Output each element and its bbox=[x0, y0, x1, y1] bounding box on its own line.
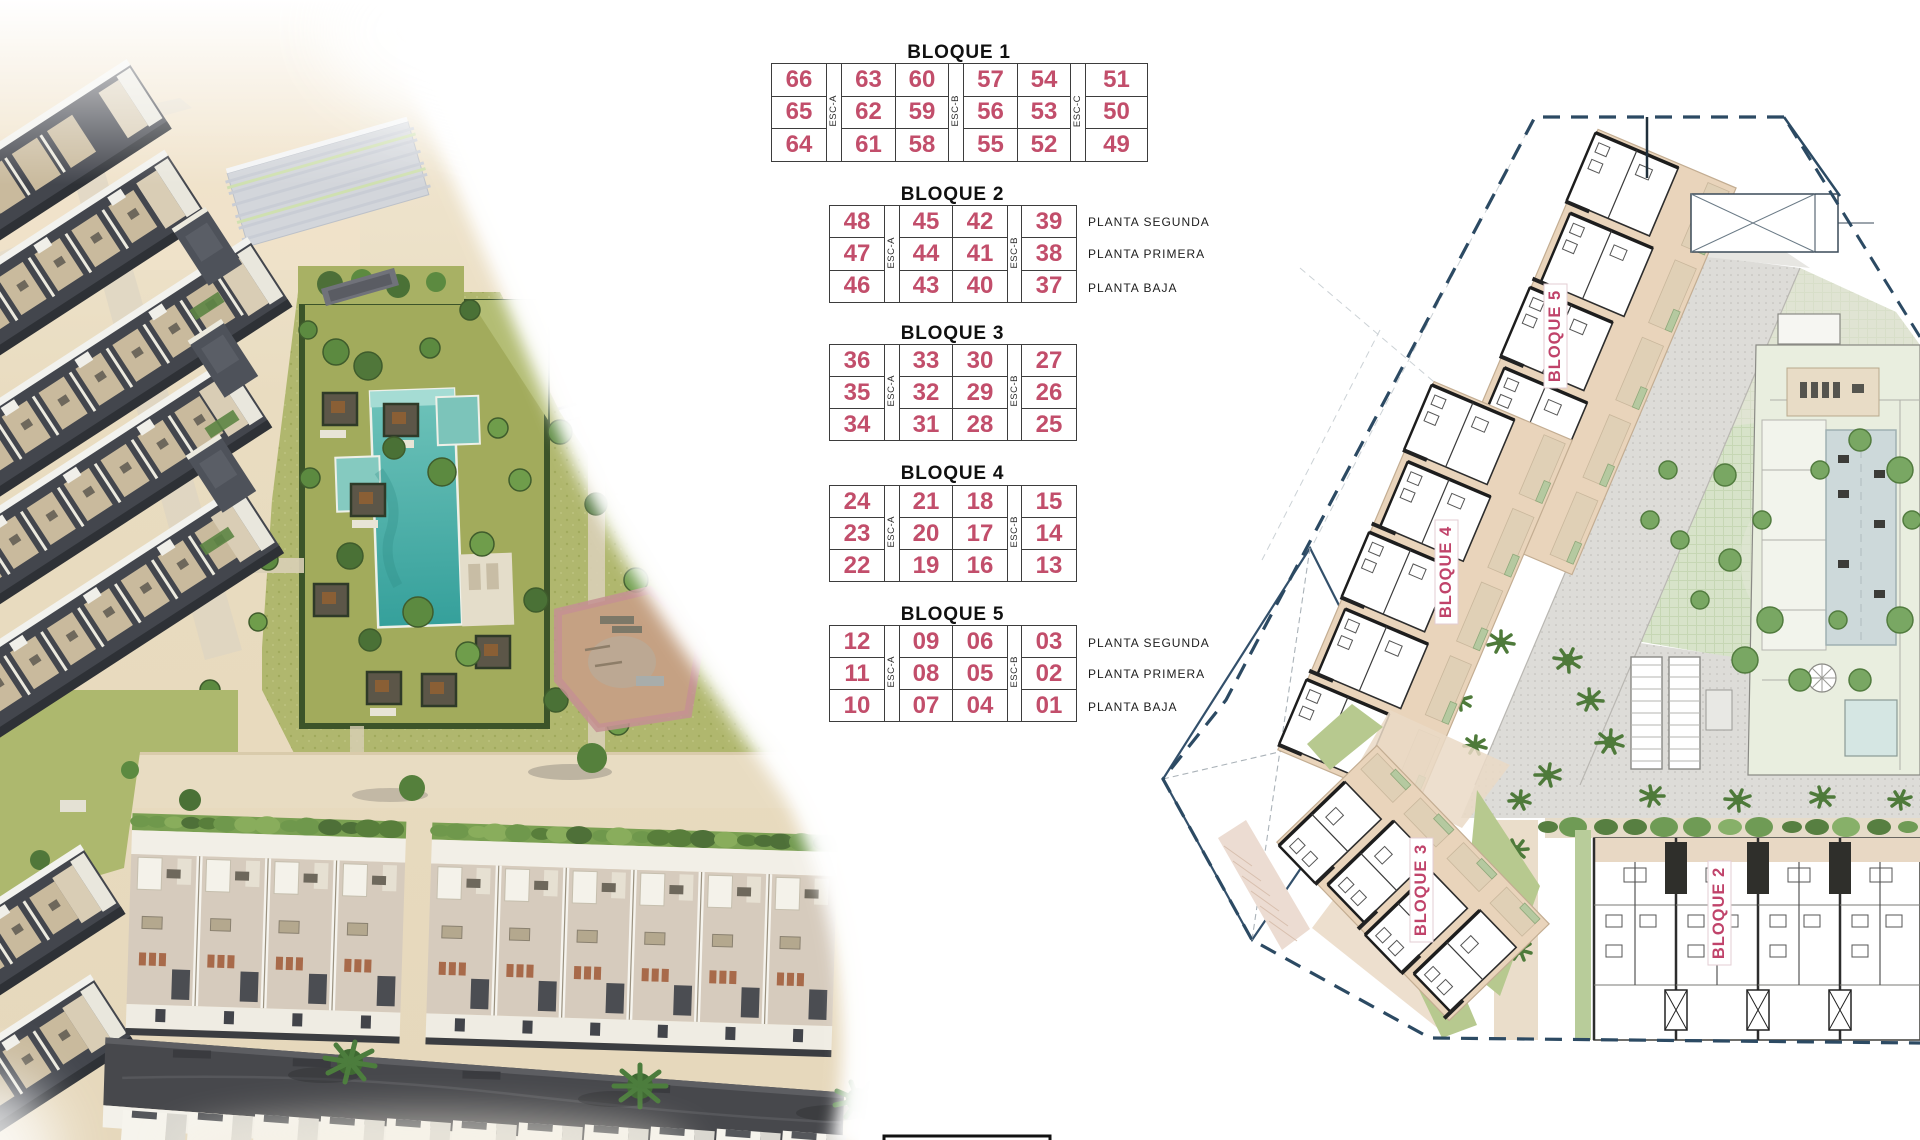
svg-text:BLOQUE 5: BLOQUE 5 bbox=[1546, 290, 1564, 382]
svg-text:BLOQUE 4: BLOQUE 4 bbox=[1437, 526, 1455, 618]
svg-text:BLOQUE 3: BLOQUE 3 bbox=[1412, 844, 1430, 936]
svg-text:BLOQUE 2: BLOQUE 2 bbox=[1710, 867, 1728, 959]
